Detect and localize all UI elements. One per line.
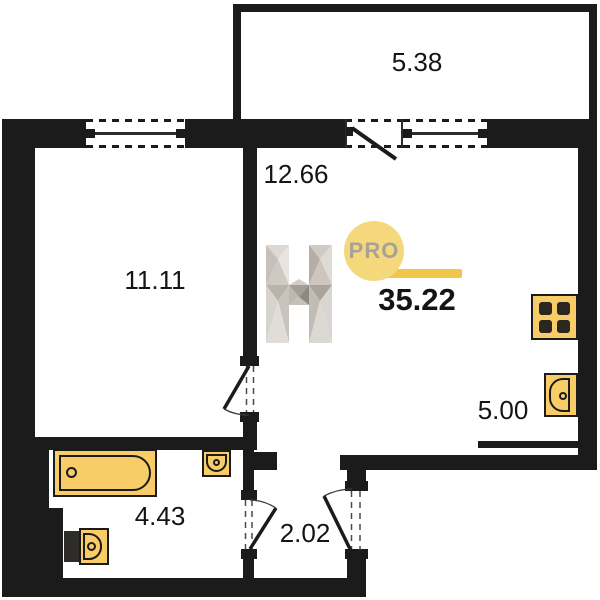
bedroom-door-leaf	[224, 366, 249, 409]
entrance-door-leaf	[324, 496, 351, 551]
balcony-door-leaf	[352, 128, 396, 159]
entrance-door-arc	[324, 489, 352, 496]
floor-plan: PRO 35.22 5.38 12.66 11.11 5.00 4.43 2.0…	[0, 0, 600, 600]
doors-overlay	[0, 0, 600, 600]
bathroom-door-arc	[250, 500, 276, 508]
bathroom-door-leaf	[250, 508, 276, 549]
bedroom-door-arc	[224, 409, 249, 415]
